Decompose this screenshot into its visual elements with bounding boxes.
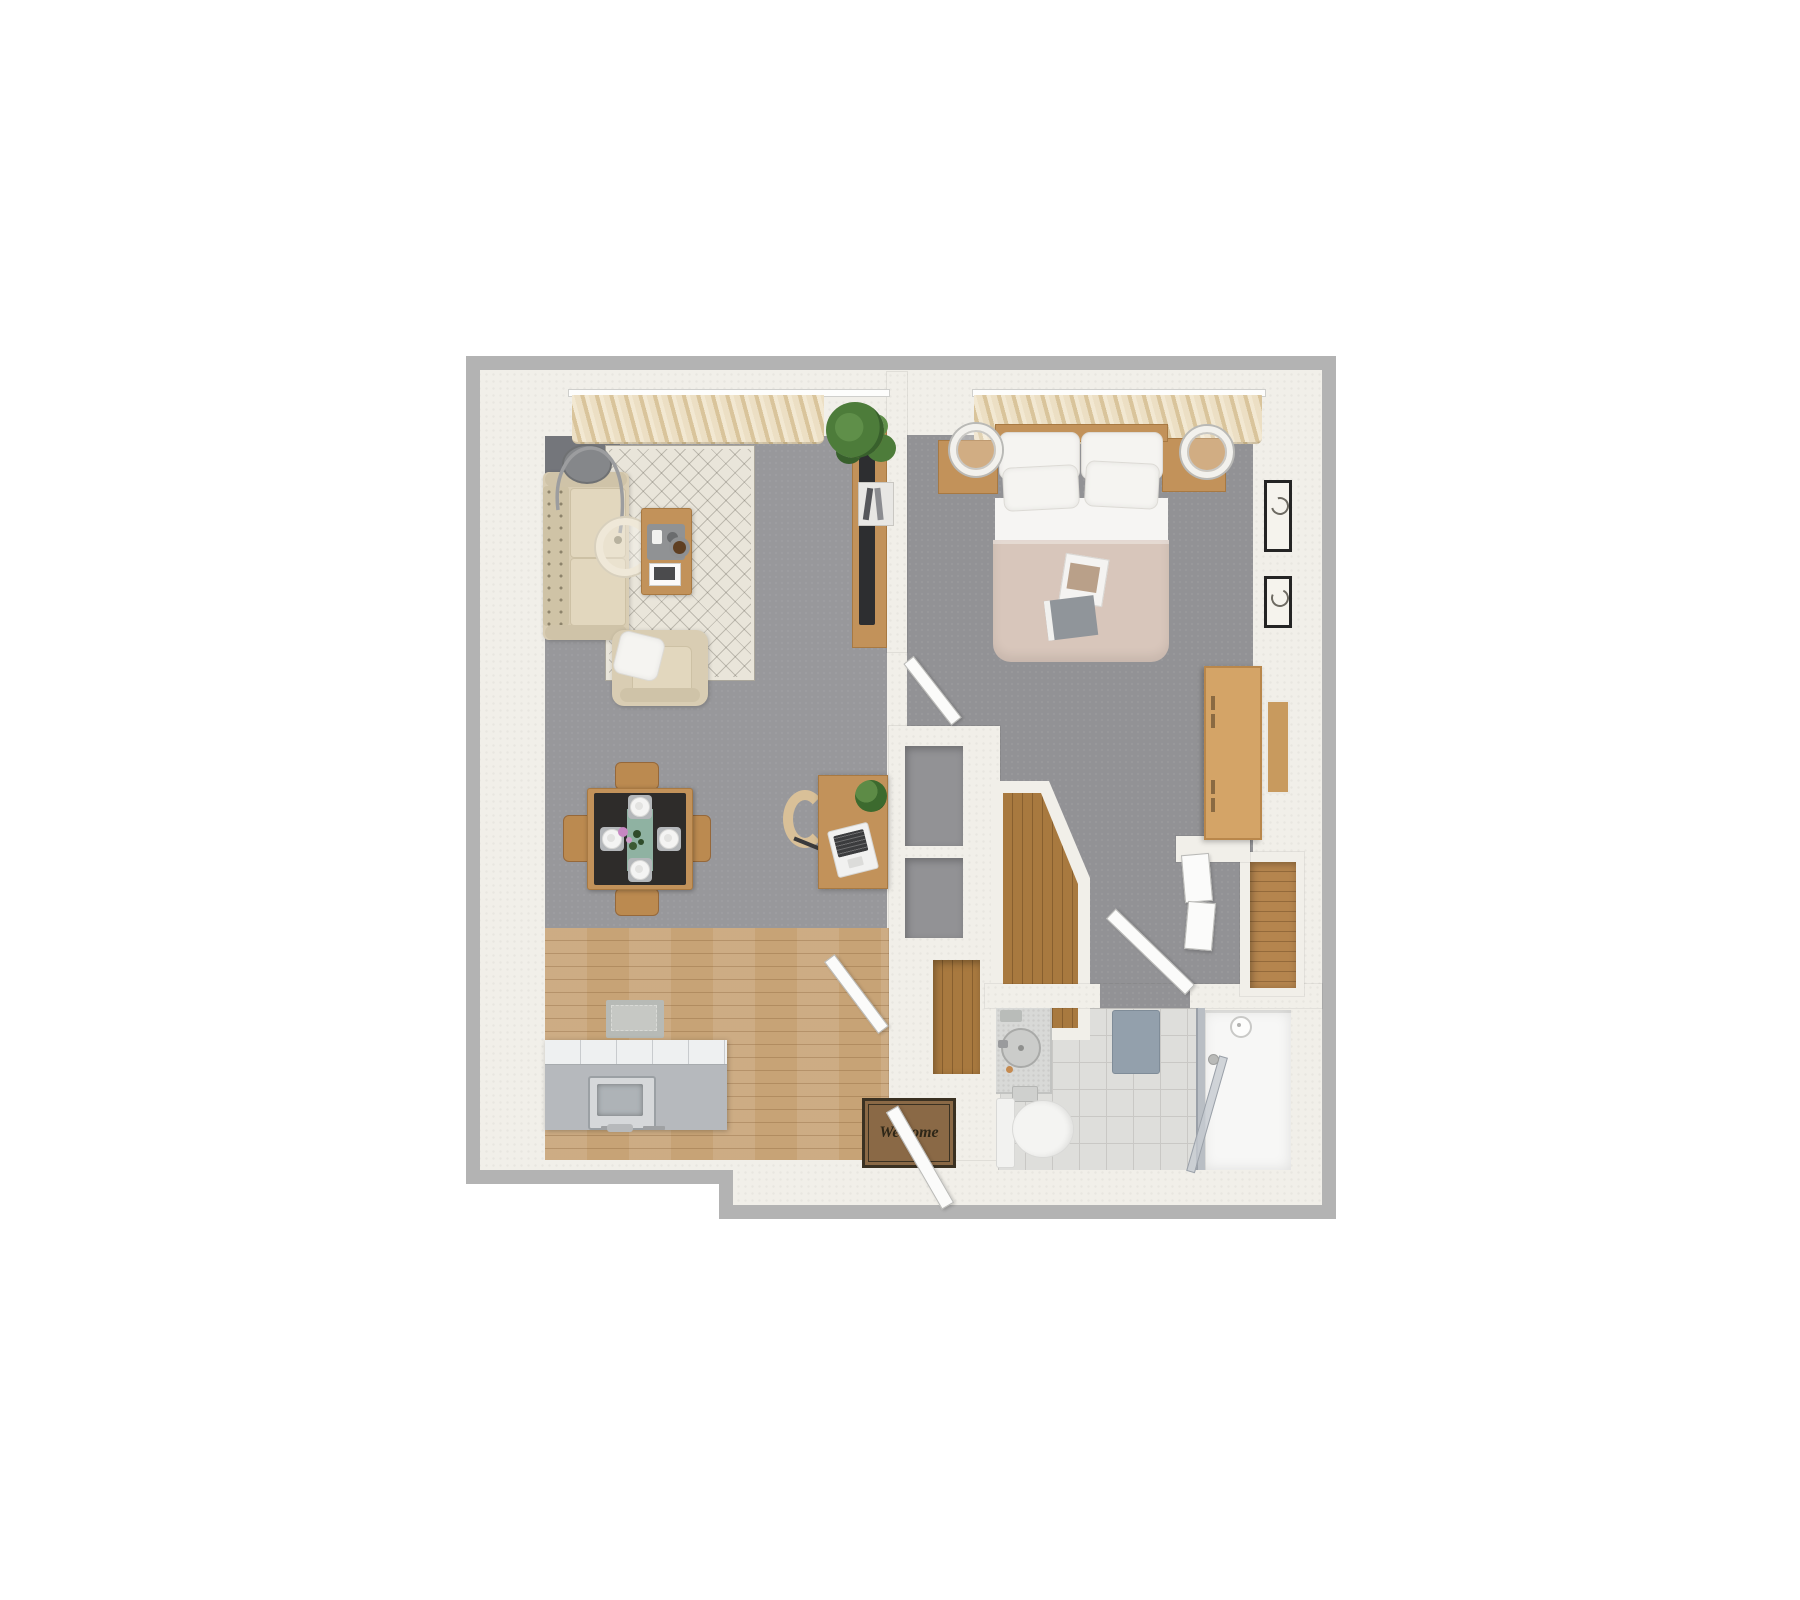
bed-pillow-front-right	[1084, 460, 1160, 510]
closet-cubby-middle	[905, 858, 963, 938]
bed	[993, 424, 1170, 664]
bedroom-closet-nook-floor	[1250, 862, 1296, 988]
floor-plan-canvas: Welcome	[0, 0, 1800, 1600]
kitchen-runner-rug	[606, 1000, 664, 1038]
bedside-lamp-left	[950, 424, 1002, 476]
dresser-handle-4	[1211, 798, 1215, 812]
shower-drain	[1208, 1054, 1219, 1065]
desk-plant	[855, 780, 887, 812]
magazine-2	[874, 488, 883, 520]
magazine-1	[863, 488, 873, 521]
magazine-cover-image	[1066, 563, 1100, 593]
book-on-bed	[1044, 595, 1099, 641]
shower-head-center	[1237, 1023, 1241, 1027]
sink-basin	[597, 1084, 643, 1116]
bath-mat	[1112, 1010, 1160, 1074]
wall-art-frame-bottom	[1264, 576, 1292, 628]
photo-frame-image	[654, 567, 675, 580]
frame-bottom-sketch	[1268, 586, 1291, 609]
dresser-handle-2	[1211, 714, 1215, 728]
place-setting-north	[628, 795, 652, 819]
kitchen-sink	[588, 1076, 656, 1130]
tv-screen	[859, 449, 875, 625]
coffee-table-photo-frame	[649, 563, 681, 586]
coffee-table-bowl	[669, 537, 690, 558]
bed-pillow-front-left	[1002, 464, 1080, 512]
toilet	[996, 1086, 1076, 1172]
desk	[818, 775, 888, 889]
bedside-lamp-right	[1181, 426, 1233, 478]
dining-table	[587, 788, 693, 890]
laptop-keyboard	[833, 829, 868, 858]
magazine-rack	[858, 482, 894, 526]
arc-lamp-hub	[614, 536, 622, 544]
dining-centerpiece-flowers	[618, 827, 628, 837]
kitchen-faucet	[607, 1124, 633, 1132]
dining-chair-north	[615, 762, 659, 790]
leaning-wall-board	[1266, 700, 1290, 794]
vanity-accessories	[1000, 1010, 1022, 1022]
closet-cubby-top	[905, 746, 963, 846]
kitchen-counter-top	[545, 1040, 727, 1065]
bedroom-dresser	[1204, 666, 1262, 840]
vanity-sink	[1001, 1028, 1041, 1068]
laptop	[827, 822, 879, 879]
tv-console	[852, 428, 887, 648]
floor-plant	[826, 402, 884, 458]
sink-drain	[1018, 1045, 1024, 1051]
vanity-soap	[1006, 1066, 1013, 1073]
bathroom-vanity	[996, 1008, 1052, 1094]
hall-closet-wood-floor	[933, 960, 980, 1074]
armchair-front-band	[620, 688, 700, 702]
kitchen-island	[545, 1040, 727, 1130]
wall-art-frame-top	[1264, 480, 1292, 552]
closet-nook-door-panel-2	[1184, 901, 1216, 951]
coffee-table	[641, 508, 692, 595]
dresser-handle-3	[1211, 780, 1215, 794]
shower-head	[1230, 1016, 1252, 1038]
armchair	[612, 630, 708, 706]
kitchen-rug-pattern	[611, 1005, 657, 1031]
dresser-handle-1	[1211, 696, 1215, 710]
bowl-inner	[673, 541, 686, 554]
place-setting-south	[628, 858, 652, 882]
vanity-faucet	[998, 1040, 1008, 1048]
tray-remote	[652, 530, 662, 544]
place-setting-east	[657, 827, 681, 851]
toilet-paper-holder	[1012, 1086, 1038, 1102]
frame-top-sketch	[1268, 494, 1293, 519]
closet-nook-door-panel-1	[1181, 853, 1213, 903]
dining-chair-south	[615, 888, 659, 916]
laptop-trackpad	[847, 856, 864, 868]
toilet-bowl	[1012, 1100, 1074, 1158]
